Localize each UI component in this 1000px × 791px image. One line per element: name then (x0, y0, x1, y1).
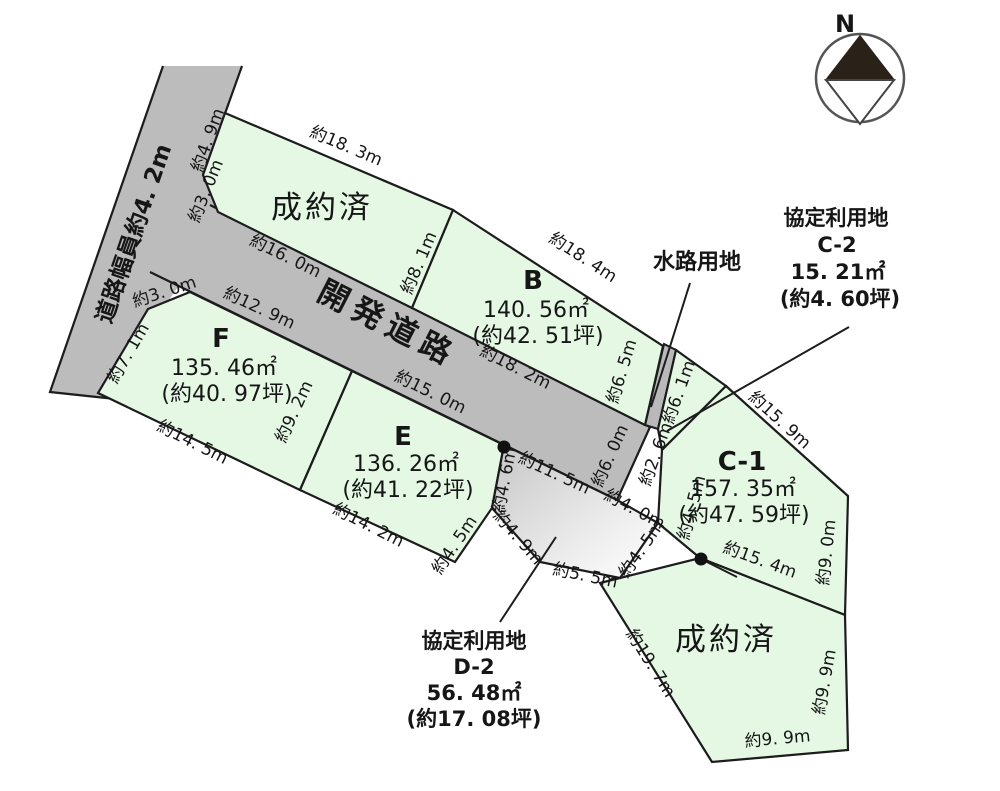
lot-map: N 道路幅員約4. 2m 開発道路 成約済 B 140. 56㎡ (約42. 5… (0, 0, 1000, 791)
c2-area: 15. 21㎡ (791, 260, 886, 284)
site-plan-svg: N 道路幅員約4. 2m 開発道路 成約済 B 140. 56㎡ (約42. 5… (0, 0, 1000, 791)
d2-annotation: 協定利用地 D-2 56. 48㎡ (約17. 08坪) (407, 629, 542, 731)
plot-f-tsubo: (約40. 97坪) (161, 382, 292, 407)
c2-tsubo: (約4. 60坪) (780, 287, 900, 311)
plot-b-area: 140. 56㎡ (483, 297, 589, 323)
plot-e-area: 136. 26㎡ (353, 451, 459, 477)
north-compass: N (816, 10, 904, 124)
plot-c1-name: C-1 (718, 447, 767, 477)
plot-e-name: E (394, 422, 412, 452)
plot-sold-bottom-label: 成約済 (675, 622, 777, 658)
plot-e-tsubo: (約41. 22坪) (342, 478, 473, 503)
d2-name: D-2 (453, 655, 494, 679)
pole-dot-c1-edge (695, 553, 708, 566)
plot-f-area: 135. 46㎡ (171, 355, 277, 381)
c2-annotation: 協定利用地 C-2 15. 21㎡ (約4. 60坪) (780, 206, 900, 311)
d2-area: 56. 48㎡ (427, 681, 522, 705)
c2-name: C-2 (817, 233, 856, 257)
plot-b-name: B (523, 266, 543, 296)
c2-title: 協定利用地 (784, 206, 889, 230)
plot-sold-top-label: 成約済 (271, 190, 373, 226)
compass-n-label: N (835, 10, 855, 38)
d2-title: 協定利用地 (422, 629, 527, 653)
plot-f-name: F (212, 324, 230, 354)
waterway-label: 水路用地 (653, 249, 741, 275)
d2-tsubo: (約17. 08坪) (407, 707, 542, 731)
